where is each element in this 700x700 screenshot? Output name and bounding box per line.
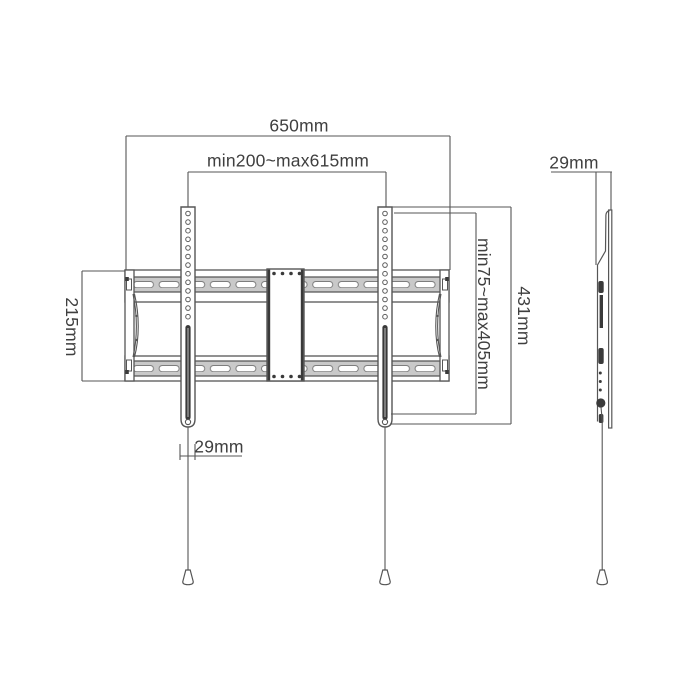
front-view: [82, 136, 511, 585]
side-cord-pulley: [596, 398, 605, 407]
cord-pulley-left: [185, 419, 190, 424]
label-vesa-vertical: min75~max405mm: [474, 238, 492, 390]
dimension-plate-height: [82, 271, 125, 381]
tv-bracket-left: [181, 207, 195, 585]
dimension-profile-depth: [551, 172, 612, 265]
label-bracket-width: 29mm: [194, 438, 243, 456]
cord-handle-left: [183, 570, 193, 585]
label-bracket-height: 431mm: [514, 286, 532, 345]
dimension-vesa-vertical: [391, 213, 476, 414]
label-rail-span: min200~max615mm: [207, 152, 369, 170]
side-cord-handle: [597, 570, 607, 585]
cord-pulley-right: [382, 419, 387, 424]
side-wall-plate: [609, 210, 612, 428]
label-profile-depth: 29mm: [549, 154, 598, 172]
label-total-width: 650mm: [269, 117, 328, 135]
dimension-rail-span: [188, 172, 386, 207]
tv-bracket-right: [378, 207, 392, 585]
side-view: [551, 172, 612, 585]
dimension-drawing: [0, 0, 700, 700]
center-vesa-plate: [267, 269, 304, 381]
cord-handle-right: [380, 570, 390, 585]
label-plate-height: 215mm: [62, 297, 80, 356]
tv-mount-dimension-diagram: 650mm min200~max615mm 215mm min75~max405…: [0, 0, 700, 700]
